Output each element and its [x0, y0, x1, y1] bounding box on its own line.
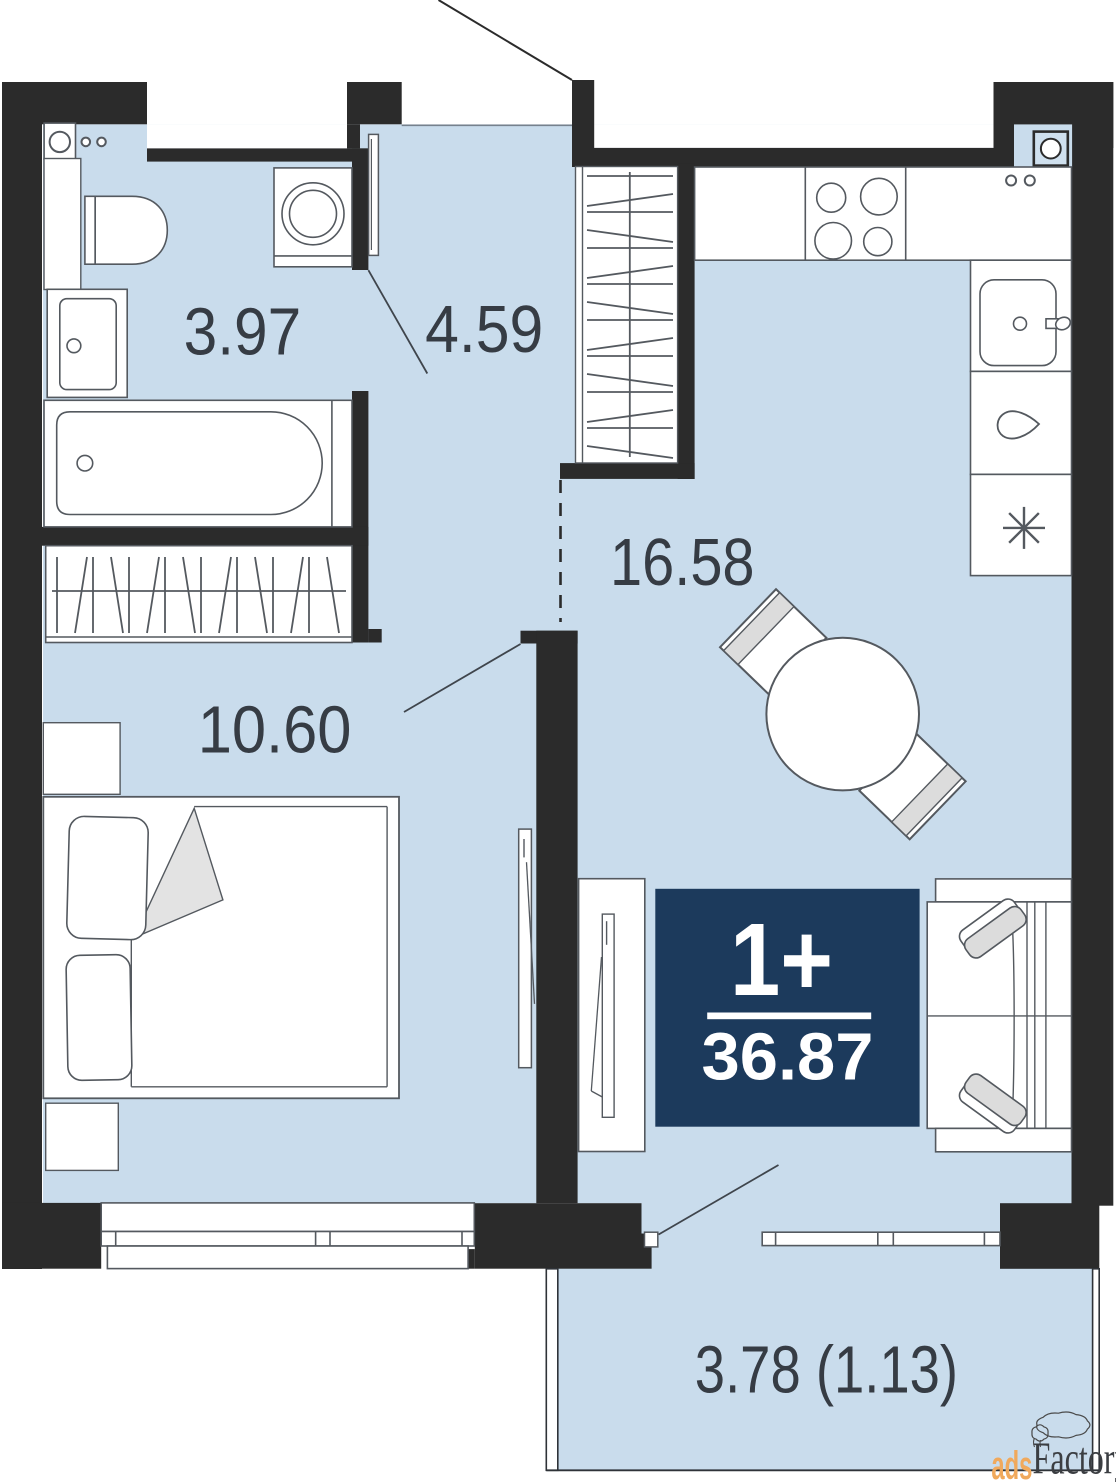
svg-text:Factory: Factory [1033, 1433, 1116, 1482]
svg-text:4.59: 4.59 [425, 292, 543, 367]
svg-text:1+: 1+ [730, 902, 833, 1017]
svg-text:10.60: 10.60 [198, 692, 352, 767]
svg-text:ads: ads [991, 1444, 1032, 1482]
svg-text:3.97: 3.97 [184, 295, 302, 370]
svg-text:3.78 (1.13): 3.78 (1.13) [695, 1333, 958, 1408]
svg-text:16.58: 16.58 [610, 525, 755, 600]
svg-text:36.87: 36.87 [702, 1020, 874, 1095]
